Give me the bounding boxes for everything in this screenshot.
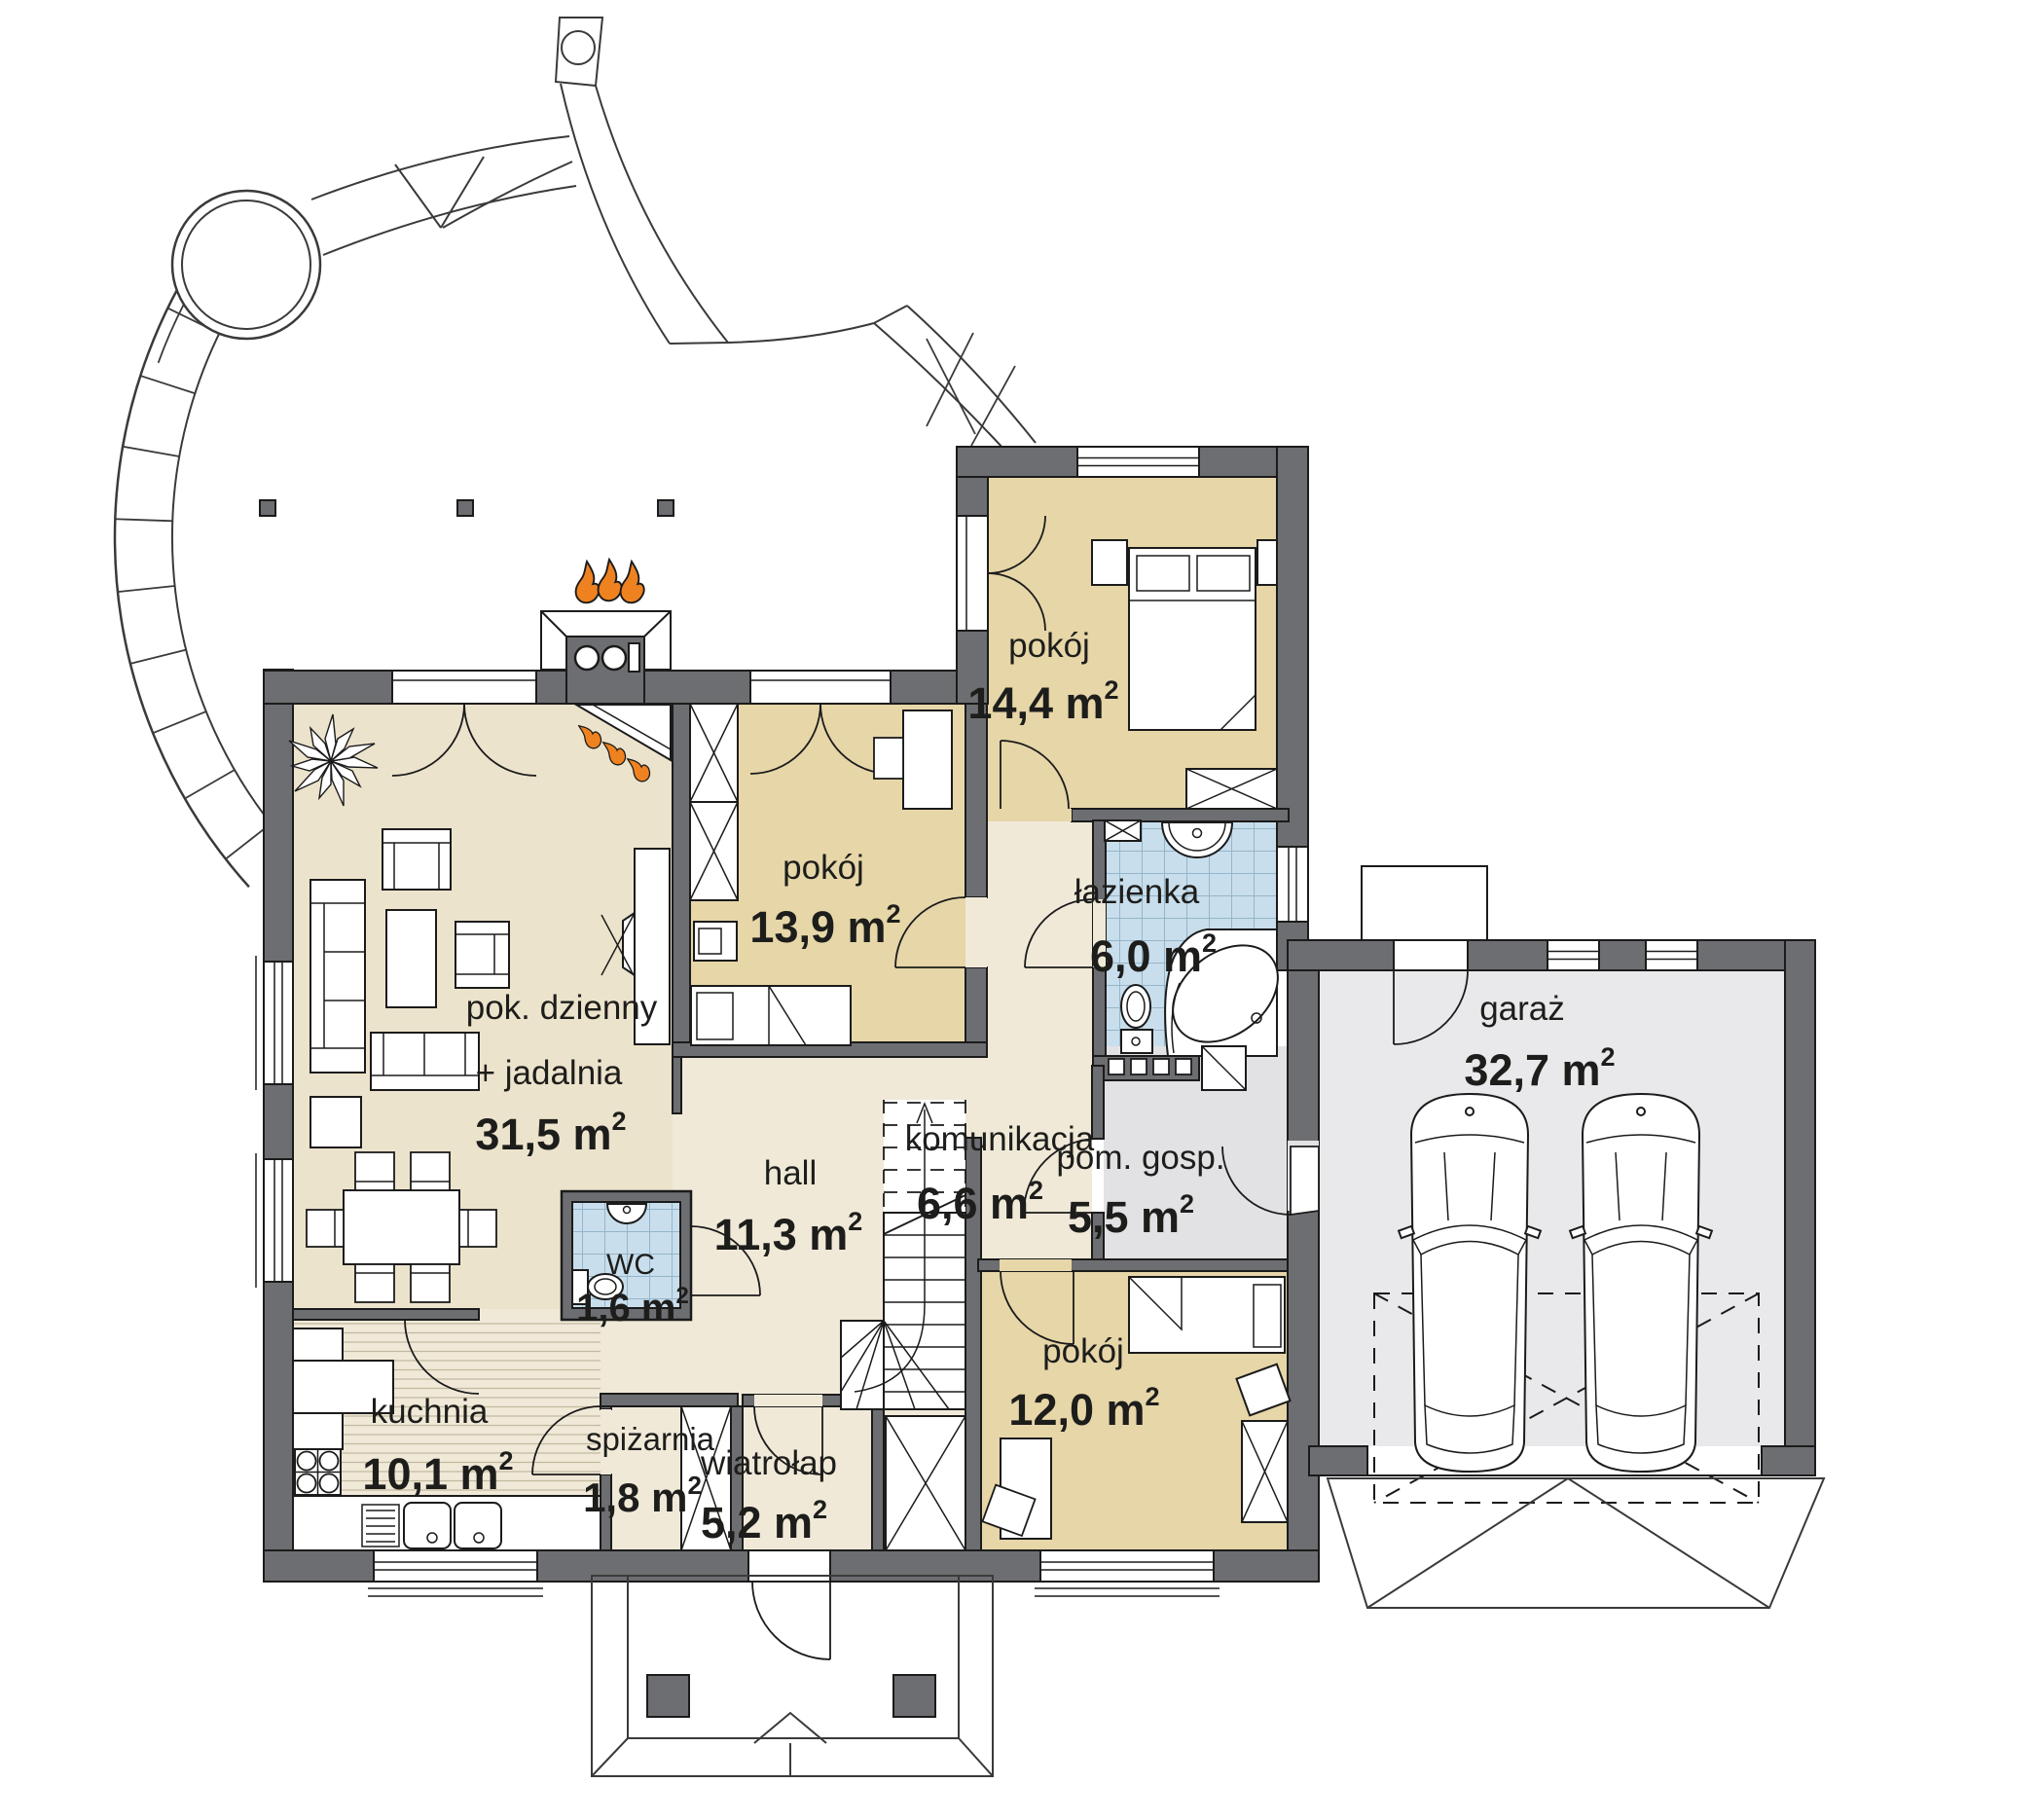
svg-text:1,6 m2: 1,6 m2	[576, 1283, 689, 1329]
svg-text:hall: hall	[764, 1154, 817, 1192]
svg-text:pokój: pokój	[1042, 1332, 1124, 1370]
svg-text:11,3 m2: 11,3 m2	[714, 1207, 863, 1259]
svg-text:pokój: pokój	[783, 849, 864, 887]
svg-text:10,1 m2: 10,1 m2	[362, 1446, 513, 1499]
svg-text:14,4 m2: 14,4 m2	[967, 675, 1118, 728]
svg-text:12,0 m2: 12,0 m2	[1008, 1382, 1159, 1435]
svg-text:13,9 m2: 13,9 m2	[749, 899, 900, 952]
svg-text:kuchnia: kuchnia	[371, 1393, 489, 1431]
svg-text:pom. gosp.: pom. gosp.	[1056, 1139, 1224, 1177]
svg-text:1,8 m2: 1,8 m2	[583, 1471, 702, 1520]
svg-text:spiżarnia: spiżarnia	[586, 1421, 715, 1457]
svg-text:+ jadalnia: + jadalnia	[476, 1054, 623, 1092]
svg-text:wiatrołap: wiatrołap	[700, 1444, 837, 1482]
svg-text:pokój: pokój	[1008, 627, 1090, 665]
svg-text:6,6 m2: 6,6 m2	[917, 1176, 1043, 1228]
svg-text:garaż: garaż	[1479, 990, 1565, 1028]
svg-text:pok. dzienny: pok. dzienny	[466, 989, 658, 1027]
svg-text:31,5 m2: 31,5 m2	[475, 1107, 626, 1159]
svg-text:6,0 m2: 6,0 m2	[1090, 928, 1217, 981]
svg-text:5,2 m2: 5,2 m2	[701, 1495, 827, 1547]
svg-text:5,5 m2: 5,5 m2	[1068, 1189, 1194, 1242]
svg-text:łazienka: łazienka	[1074, 873, 1200, 911]
svg-text:32,7 m2: 32,7 m2	[1464, 1042, 1615, 1095]
svg-text:WC: WC	[606, 1249, 655, 1281]
